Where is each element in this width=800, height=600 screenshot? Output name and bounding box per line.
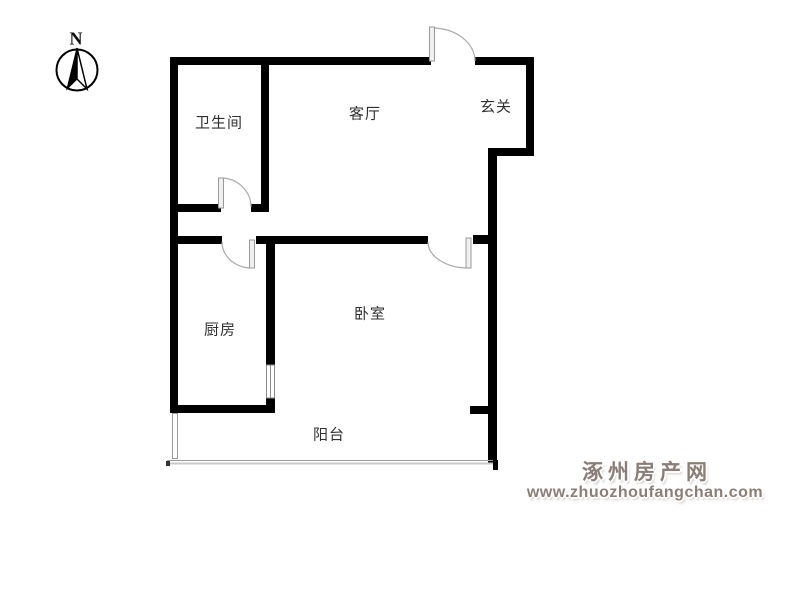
bedroom-door-arc xyxy=(428,242,468,268)
wall-top-right xyxy=(475,57,534,65)
entrance-door-arc xyxy=(432,28,475,61)
wall-bedroom-top-right xyxy=(473,235,488,244)
compass-north-label: N xyxy=(70,29,83,50)
kitchen-door-leaf xyxy=(250,240,255,268)
bathroom-door-arc xyxy=(221,178,251,207)
wall-kitchen-top-left xyxy=(170,236,222,244)
wall-kitchen-bedroom-upper xyxy=(266,236,275,365)
floorplan-image: N 卫生间 客厅 玄关 厨房 卧室 阳台 涿州房产网 www.zhuozhouf… xyxy=(0,0,800,600)
compass-needle-right xyxy=(77,48,87,89)
wall-bathroom-living xyxy=(261,57,269,212)
wall-balcony-stub xyxy=(470,406,488,414)
room-label-living-room: 客厅 xyxy=(349,103,381,124)
wall-bedroom-top xyxy=(256,236,428,244)
wall-left xyxy=(170,57,178,413)
wall-right-upper xyxy=(526,57,534,156)
watermark-site-url: www.zhuozhoufangchan.com xyxy=(527,484,763,502)
room-label-bedroom: 卧室 xyxy=(354,303,386,324)
room-label-entry: 玄关 xyxy=(480,96,512,117)
wall-right-tail xyxy=(493,460,498,470)
watermark-site-name: 涿州房产网 xyxy=(582,456,712,486)
wall-bathroom-bottom-left xyxy=(170,204,221,212)
wall-top-left xyxy=(170,57,431,65)
wall-right-lower xyxy=(488,148,497,464)
wall-kitchen-bottom xyxy=(170,405,272,413)
bedroom-door-leaf xyxy=(466,238,471,268)
kitchen-door-arc xyxy=(222,242,250,268)
room-label-balcony: 阳台 xyxy=(313,424,345,445)
north-compass-icon xyxy=(57,48,98,91)
floorplan-drawing xyxy=(0,0,800,600)
room-label-kitchen: 厨房 xyxy=(204,319,236,340)
windows xyxy=(166,365,493,466)
bathroom-door-leaf xyxy=(219,178,224,208)
balcony-window-end-cap xyxy=(166,461,170,466)
compass-needle-left xyxy=(67,48,77,89)
entrance-door-leaf xyxy=(430,27,435,61)
balcony-left-window xyxy=(173,414,178,459)
room-label-bathroom: 卫生间 xyxy=(195,112,243,133)
wall-bathroom-bottom-right xyxy=(251,204,269,212)
